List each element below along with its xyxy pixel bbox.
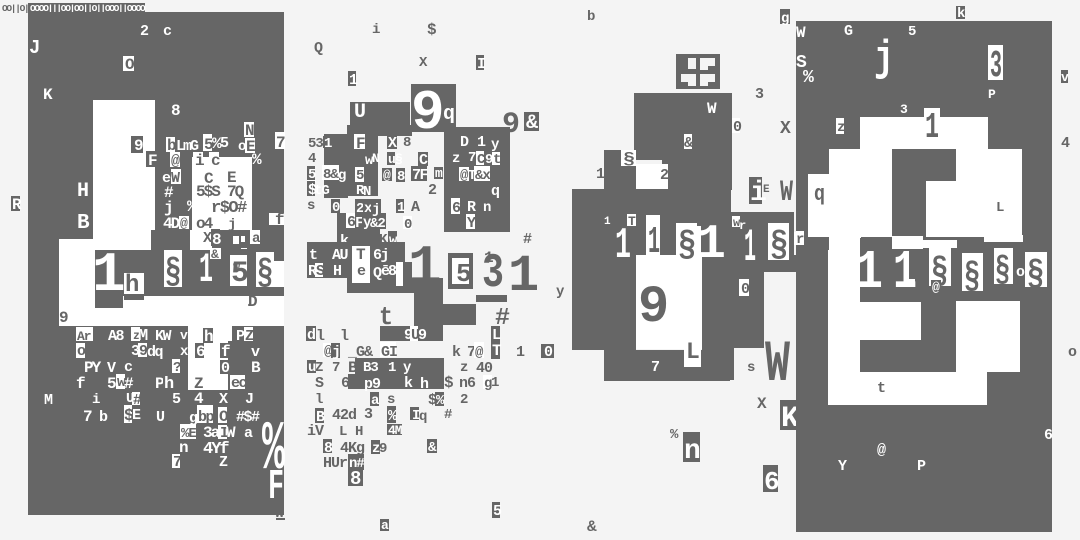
svg-text:A: A bbox=[411, 199, 420, 216]
svg-text:6: 6 bbox=[452, 200, 461, 217]
svg-text:R: R bbox=[467, 199, 476, 216]
svg-text:y: y bbox=[403, 360, 412, 376]
svg-text:6: 6 bbox=[1044, 427, 1053, 444]
svg-text:a: a bbox=[381, 518, 389, 533]
svg-text:9: 9 bbox=[59, 309, 69, 327]
svg-text:W: W bbox=[780, 176, 793, 210]
svg-text:5: 5 bbox=[493, 503, 502, 520]
svg-text:K: K bbox=[43, 86, 53, 104]
svg-text:1: 1 bbox=[697, 218, 726, 272]
svg-text:8: 8 bbox=[350, 468, 361, 490]
svg-text:g: g bbox=[338, 168, 346, 184]
svg-text:T: T bbox=[356, 246, 366, 264]
svg-text:A8: A8 bbox=[108, 328, 125, 345]
svg-text:j: j bbox=[874, 34, 894, 84]
svg-text:t: t bbox=[309, 247, 318, 264]
svg-text:6: 6 bbox=[764, 467, 780, 497]
svg-text:H: H bbox=[355, 424, 363, 440]
svg-text:1: 1 bbox=[855, 241, 883, 304]
svg-text:y: y bbox=[491, 137, 500, 153]
svg-text:l: l bbox=[316, 328, 325, 345]
svg-text:a: a bbox=[252, 231, 261, 247]
svg-text:1: 1 bbox=[893, 241, 917, 304]
svg-text:X: X bbox=[203, 230, 212, 247]
svg-text:ec: ec bbox=[231, 375, 248, 392]
svg-text:6: 6 bbox=[341, 375, 350, 392]
svg-text:X: X bbox=[219, 391, 228, 408]
svg-text:k: k bbox=[404, 375, 413, 392]
svg-text:B: B bbox=[251, 359, 261, 377]
svg-text:9: 9 bbox=[379, 441, 387, 457]
svg-text:L: L bbox=[339, 424, 347, 440]
svg-text:8: 8 bbox=[403, 135, 411, 151]
svg-text:0: 0 bbox=[332, 200, 340, 216]
svg-text:c: c bbox=[163, 23, 172, 40]
svg-text:5: 5 bbox=[456, 259, 472, 289]
svg-text:L: L bbox=[996, 200, 1004, 216]
svg-text:§: § bbox=[395, 152, 403, 167]
svg-text:y: y bbox=[556, 284, 565, 300]
svg-text:z: z bbox=[837, 120, 845, 136]
svg-text:B3: B3 bbox=[363, 360, 378, 376]
svg-text:j: j bbox=[332, 344, 341, 361]
svg-text:@: @ bbox=[383, 168, 391, 183]
svg-text:AU: AU bbox=[332, 247, 349, 264]
svg-text:J: J bbox=[29, 37, 40, 59]
svg-text:1: 1 bbox=[92, 243, 126, 307]
svg-text:F: F bbox=[148, 152, 158, 170]
svg-text:q: q bbox=[814, 182, 825, 207]
svg-text:o: o bbox=[1016, 264, 1025, 281]
svg-text:N: N bbox=[363, 184, 371, 200]
svg-text:x: x bbox=[180, 344, 189, 360]
svg-text:P: P bbox=[236, 328, 245, 345]
svg-text:W: W bbox=[707, 100, 717, 118]
svg-text:&: & bbox=[587, 518, 597, 536]
svg-text:J: J bbox=[245, 391, 254, 408]
svg-text:k: k bbox=[957, 6, 965, 22]
svg-text:1: 1 bbox=[199, 246, 213, 294]
svg-text:f: f bbox=[221, 343, 231, 361]
svg-text:§: § bbox=[1027, 255, 1044, 296]
svg-text:@: @ bbox=[932, 280, 940, 295]
svg-text:#: # bbox=[444, 407, 452, 423]
svg-text:v: v bbox=[1061, 70, 1069, 85]
svg-text:D: D bbox=[460, 134, 469, 151]
svg-text:s: s bbox=[307, 198, 315, 214]
svg-text:M: M bbox=[44, 392, 53, 409]
svg-text:a: a bbox=[244, 425, 253, 442]
svg-text:w: w bbox=[233, 260, 241, 274]
svg-text:3: 3 bbox=[364, 406, 373, 423]
svg-text:P: P bbox=[917, 458, 926, 475]
svg-text:z: z bbox=[452, 151, 460, 167]
svg-text:7: 7 bbox=[276, 134, 286, 152]
svg-text:§: § bbox=[995, 251, 1010, 292]
svg-text:X: X bbox=[757, 395, 767, 413]
svg-text:@: @ bbox=[171, 153, 180, 170]
svg-text:4: 4 bbox=[308, 151, 316, 167]
svg-text:r$O#: r$O# bbox=[211, 199, 247, 218]
svg-text:R: R bbox=[12, 196, 22, 214]
svg-text:1: 1 bbox=[324, 136, 332, 152]
svg-text:§: § bbox=[257, 254, 273, 295]
svg-text:d: d bbox=[307, 327, 316, 344]
svg-text:3: 3 bbox=[990, 45, 1002, 88]
svg-text:1: 1 bbox=[516, 344, 525, 361]
svg-text:b: b bbox=[587, 9, 595, 25]
svg-text:.: . bbox=[245, 295, 253, 311]
svg-text:&: & bbox=[526, 112, 538, 135]
svg-text:H: H bbox=[77, 180, 89, 203]
svg-text:&2: &2 bbox=[370, 216, 385, 232]
svg-text:1: 1 bbox=[388, 360, 396, 376]
svg-text:8: 8 bbox=[397, 169, 405, 185]
svg-text:F: F bbox=[268, 462, 284, 511]
svg-text:1: 1 bbox=[477, 134, 486, 151]
svg-text:5: 5 bbox=[220, 135, 229, 152]
svg-text:t: t bbox=[877, 380, 886, 397]
svg-text:5: 5 bbox=[908, 24, 916, 40]
svg-text:0: 0 bbox=[404, 217, 412, 233]
svg-text:n: n bbox=[483, 200, 491, 216]
svg-text:9: 9 bbox=[418, 327, 427, 344]
svg-text:9: 9 bbox=[638, 278, 669, 337]
svg-text:v: v bbox=[180, 328, 188, 343]
svg-text:i: i bbox=[195, 152, 205, 170]
svg-text:q: q bbox=[419, 409, 427, 425]
svg-text:9: 9 bbox=[411, 81, 445, 145]
svg-text:7F: 7F bbox=[412, 167, 429, 184]
svg-text:U: U bbox=[156, 409, 165, 426]
svg-text:PY: PY bbox=[84, 359, 102, 377]
svg-text:n: n bbox=[684, 436, 701, 467]
svg-text:0: 0 bbox=[221, 360, 230, 377]
svg-text:3: 3 bbox=[755, 86, 764, 103]
svg-text:X: X bbox=[780, 119, 791, 139]
svg-text:%: % bbox=[670, 427, 679, 443]
svg-text:h: h bbox=[420, 376, 429, 393]
svg-text:Z: Z bbox=[245, 328, 254, 345]
svg-text:Q: Q bbox=[314, 40, 323, 57]
svg-text:E: E bbox=[132, 407, 141, 424]
svg-text:&x: &x bbox=[475, 168, 491, 184]
svg-text:s: s bbox=[747, 360, 755, 376]
svg-text:P: P bbox=[988, 87, 996, 102]
svg-text:&: & bbox=[684, 135, 693, 152]
svg-text:o: o bbox=[1068, 344, 1077, 361]
svg-text:%: % bbox=[252, 151, 262, 169]
svg-text:KW: KW bbox=[155, 328, 172, 345]
svg-text:6: 6 bbox=[196, 343, 206, 361]
svg-text:7: 7 bbox=[83, 408, 93, 426]
svg-text:o: o bbox=[77, 343, 86, 360]
svg-text:1: 1 bbox=[604, 216, 611, 228]
svg-text:U: U bbox=[354, 101, 366, 124]
svg-text:n6: n6 bbox=[459, 375, 476, 392]
svg-text:X: X bbox=[388, 135, 397, 152]
svg-text:f: f bbox=[76, 375, 86, 393]
svg-text:r: r bbox=[796, 232, 804, 248]
svg-text:7: 7 bbox=[468, 150, 476, 166]
svg-text:1: 1 bbox=[925, 107, 939, 148]
svg-text:7: 7 bbox=[332, 360, 340, 376]
svg-text:W: W bbox=[796, 24, 806, 42]
svg-text:%: % bbox=[187, 198, 197, 216]
svg-text:F: F bbox=[356, 135, 366, 153]
svg-text:2: 2 bbox=[428, 182, 437, 199]
svg-text:f: f bbox=[275, 211, 285, 229]
svg-text:l: l bbox=[315, 392, 323, 408]
svg-text:Y: Y bbox=[838, 458, 847, 475]
svg-text:53: 53 bbox=[308, 136, 323, 152]
svg-text:%: % bbox=[803, 68, 814, 88]
svg-text:§: § bbox=[623, 151, 635, 170]
svg-text:e: e bbox=[357, 263, 366, 280]
svg-text:j: j bbox=[228, 217, 236, 233]
svg-text:1: 1 bbox=[397, 200, 405, 216]
svg-text:§: § bbox=[678, 226, 696, 267]
svg-text:g: g bbox=[781, 11, 789, 27]
svg-text:S: S bbox=[315, 375, 324, 392]
svg-text:§: § bbox=[165, 253, 181, 294]
svg-text:1: 1 bbox=[491, 375, 499, 391]
svg-text:p9: p9 bbox=[364, 376, 381, 393]
svg-text:0: 0 bbox=[741, 281, 750, 298]
svg-text:5: 5 bbox=[356, 168, 364, 184]
svg-text:i: i bbox=[372, 22, 380, 38]
svg-text:1: 1 bbox=[744, 222, 756, 274]
svg-text:2: 2 bbox=[460, 392, 468, 408]
svg-text:O: O bbox=[125, 56, 135, 74]
svg-text:t: t bbox=[493, 152, 501, 168]
svg-text:l: l bbox=[340, 328, 349, 345]
svg-text:@: @ bbox=[475, 345, 484, 361]
svg-text:X: X bbox=[419, 55, 428, 71]
svg-text:2: 2 bbox=[140, 23, 149, 40]
svg-text:8&: 8& bbox=[323, 167, 339, 183]
svg-text:B: B bbox=[77, 212, 90, 235]
svg-text:$: $ bbox=[444, 374, 454, 392]
svg-text:&: & bbox=[428, 440, 437, 456]
svg-text:Y: Y bbox=[467, 215, 476, 232]
svg-text:S: S bbox=[316, 263, 325, 280]
svg-text:T: T bbox=[492, 342, 502, 360]
svg-text:7: 7 bbox=[651, 359, 660, 376]
svg-text:§: § bbox=[964, 257, 980, 300]
svg-text:#: # bbox=[523, 231, 532, 248]
svg-text:Ar: Ar bbox=[77, 329, 91, 344]
svg-text:5: 5 bbox=[172, 391, 181, 408]
svg-text:m: m bbox=[435, 166, 443, 181]
svg-text:9: 9 bbox=[134, 137, 144, 155]
svg-text:i: i bbox=[92, 392, 100, 408]
svg-text:7: 7 bbox=[173, 454, 182, 471]
svg-text:tG: tG bbox=[314, 183, 329, 199]
svg-text:G: G bbox=[844, 23, 853, 40]
svg-text:I: I bbox=[477, 56, 486, 73]
svg-text:4M: 4M bbox=[388, 423, 403, 438]
svg-text:?: ? bbox=[173, 360, 181, 376]
svg-text:42d: 42d bbox=[332, 407, 356, 424]
svg-text:1: 1 bbox=[596, 166, 605, 183]
svg-text:E: E bbox=[763, 184, 770, 196]
svg-text:s: s bbox=[387, 392, 395, 408]
svg-text:1: 1 bbox=[349, 72, 358, 89]
svg-text:8: 8 bbox=[388, 263, 397, 280]
svg-text:1: 1 bbox=[615, 221, 631, 271]
svg-text:2: 2 bbox=[660, 167, 669, 184]
svg-text:1: 1 bbox=[484, 249, 494, 267]
svg-text:HUr: HUr bbox=[323, 455, 347, 472]
svg-text:5: 5 bbox=[107, 375, 117, 393]
svg-text:3: 3 bbox=[900, 102, 908, 117]
svg-text:OO||O|: OO||O| bbox=[2, 3, 28, 14]
svg-text:b: b bbox=[99, 409, 108, 426]
svg-text:q: q bbox=[491, 183, 500, 200]
svg-text:0: 0 bbox=[733, 119, 742, 136]
svg-text:#$#: #$# bbox=[236, 409, 260, 426]
svg-text:@: @ bbox=[180, 216, 188, 231]
svg-text:N: N bbox=[372, 151, 380, 166]
svg-text:c: c bbox=[211, 152, 221, 170]
svg-text:$: $ bbox=[427, 21, 437, 39]
svg-text:z: z bbox=[460, 360, 468, 376]
svg-text:W: W bbox=[765, 333, 790, 398]
svg-text:6j: 6j bbox=[373, 247, 388, 264]
svg-text:@: @ bbox=[877, 442, 886, 459]
svg-text:§: § bbox=[770, 226, 788, 267]
svg-text:H: H bbox=[333, 263, 342, 280]
svg-text:0: 0 bbox=[544, 344, 553, 361]
svg-text:1: 1 bbox=[508, 247, 539, 306]
svg-text:dq: dq bbox=[147, 344, 163, 361]
svg-text:1: 1 bbox=[648, 221, 660, 264]
svg-text:8: 8 bbox=[171, 102, 181, 120]
svg-text:4: 4 bbox=[1061, 135, 1070, 152]
svg-text:iV: iV bbox=[307, 423, 324, 440]
svg-text:L: L bbox=[686, 339, 700, 365]
svg-text:Z: Z bbox=[219, 454, 228, 471]
svg-text:Z: Z bbox=[315, 360, 323, 376]
svg-text:k: k bbox=[452, 344, 461, 361]
svg-text:q: q bbox=[443, 103, 455, 126]
